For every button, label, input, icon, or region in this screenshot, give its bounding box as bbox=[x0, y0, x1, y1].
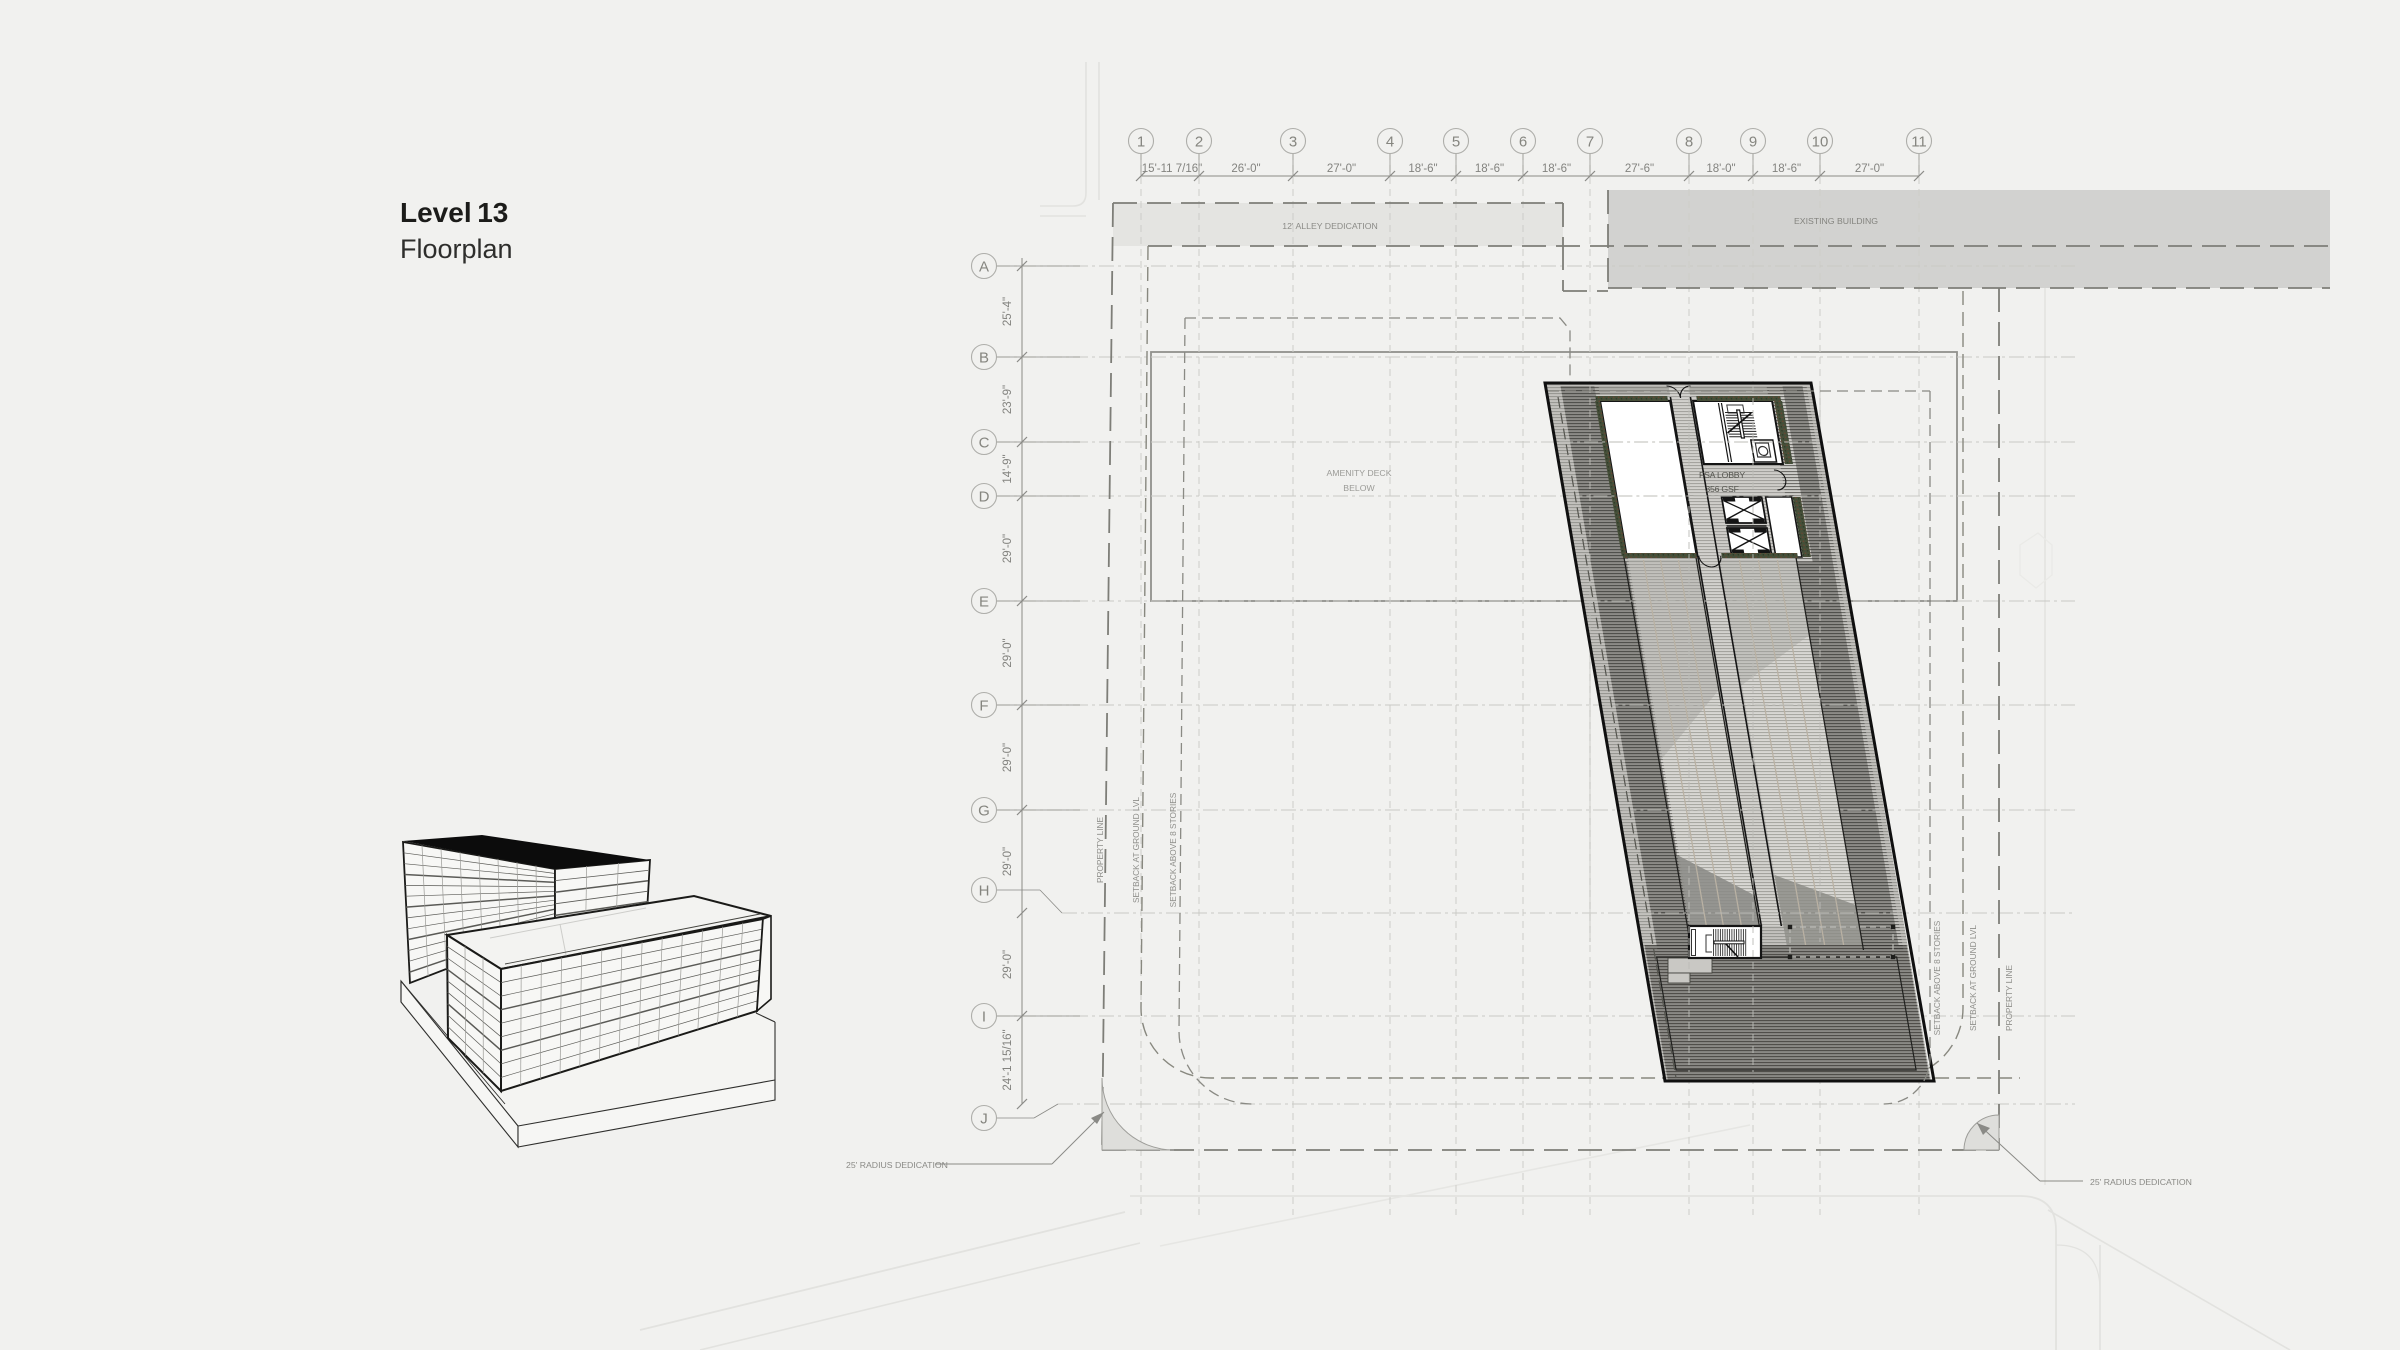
svg-text:1: 1 bbox=[1137, 134, 1145, 151]
svg-text:18'-6": 18'-6" bbox=[1542, 163, 1571, 175]
svg-text:SETBACK ABOVE 8 STORIES: SETBACK ABOVE 8 STORIES bbox=[1168, 792, 1178, 907]
svg-text:3: 3 bbox=[1289, 134, 1297, 151]
svg-text:18'-6": 18'-6" bbox=[1475, 163, 1504, 175]
svg-text:BELOW: BELOW bbox=[1343, 483, 1375, 493]
svg-text:10: 10 bbox=[1812, 134, 1829, 151]
svg-text:EXISTING BUILDING: EXISTING BUILDING bbox=[1794, 216, 1878, 226]
svg-text:5: 5 bbox=[1452, 134, 1460, 151]
svg-text:B: B bbox=[979, 350, 989, 367]
svg-text:F: F bbox=[979, 698, 988, 715]
svg-text:11: 11 bbox=[1911, 134, 1927, 151]
svg-text:356 GSF: 356 GSF bbox=[1705, 484, 1738, 494]
svg-text:14'-9": 14'-9" bbox=[1002, 454, 1014, 483]
svg-text:12' ALLEY DEDICATION: 12' ALLEY DEDICATION bbox=[1282, 221, 1378, 231]
svg-text:H: H bbox=[979, 883, 990, 900]
svg-text:29'-0": 29'-0" bbox=[1002, 847, 1014, 876]
svg-text:29'-0": 29'-0" bbox=[1002, 950, 1014, 979]
svg-text:2: 2 bbox=[1195, 134, 1203, 151]
svg-text:A: A bbox=[979, 259, 989, 276]
svg-text:PROPERTY LINE: PROPERTY LINE bbox=[1095, 816, 1105, 883]
svg-text:27'-6": 27'-6" bbox=[1625, 163, 1654, 175]
svg-text:J: J bbox=[980, 1111, 988, 1128]
svg-text:29'-0": 29'-0" bbox=[1002, 638, 1014, 667]
svg-text:C: C bbox=[979, 435, 990, 452]
svg-text:27'-0": 27'-0" bbox=[1327, 163, 1356, 175]
svg-text:4: 4 bbox=[1386, 134, 1394, 151]
svg-text:25' RADIUS DEDICATION: 25' RADIUS DEDICATION bbox=[846, 1160, 948, 1170]
svg-text:23'-9": 23'-9" bbox=[1002, 385, 1014, 414]
svg-text:18'-0": 18'-0" bbox=[1706, 163, 1735, 175]
svg-text:9: 9 bbox=[1749, 134, 1757, 151]
svg-text:25'-4": 25'-4" bbox=[1002, 297, 1014, 326]
svg-text:18'-6": 18'-6" bbox=[1772, 163, 1801, 175]
svg-text:AMENITY DECK: AMENITY DECK bbox=[1326, 468, 1391, 478]
svg-text:7: 7 bbox=[1586, 134, 1594, 151]
svg-text:15'-11 7/16": 15'-11 7/16" bbox=[1142, 163, 1202, 175]
svg-text:E: E bbox=[979, 594, 989, 611]
svg-text:I: I bbox=[982, 1009, 986, 1026]
svg-text:PROPERTY LINE: PROPERTY LINE bbox=[2004, 964, 2014, 1031]
svg-text:6: 6 bbox=[1519, 134, 1527, 151]
svg-text:D: D bbox=[979, 489, 990, 506]
svg-text:SETBACK ABOVE 8 STORIES: SETBACK ABOVE 8 STORIES bbox=[1932, 920, 1942, 1035]
svg-text:8: 8 bbox=[1685, 134, 1693, 151]
svg-text:27'-0": 27'-0" bbox=[1855, 163, 1884, 175]
svg-text:18'-6": 18'-6" bbox=[1408, 163, 1437, 175]
svg-text:SETBACK AT GROUND LVL: SETBACK AT GROUND LVL bbox=[1131, 797, 1141, 903]
svg-text:G: G bbox=[978, 803, 990, 820]
svg-text:29'-0": 29'-0" bbox=[1002, 743, 1014, 772]
svg-text:SETBACK AT GROUND LVL: SETBACK AT GROUND LVL bbox=[1968, 925, 1978, 1031]
svg-text:24'-1 15/16": 24'-1 15/16" bbox=[1002, 1029, 1014, 1090]
svg-text:29'-0": 29'-0" bbox=[1002, 534, 1014, 563]
svg-text:26'-0": 26'-0" bbox=[1231, 163, 1260, 175]
svg-text:FSA LOBBY: FSA LOBBY bbox=[1699, 470, 1745, 480]
svg-text:25' RADIUS DEDICATION: 25' RADIUS DEDICATION bbox=[2090, 1177, 2192, 1187]
